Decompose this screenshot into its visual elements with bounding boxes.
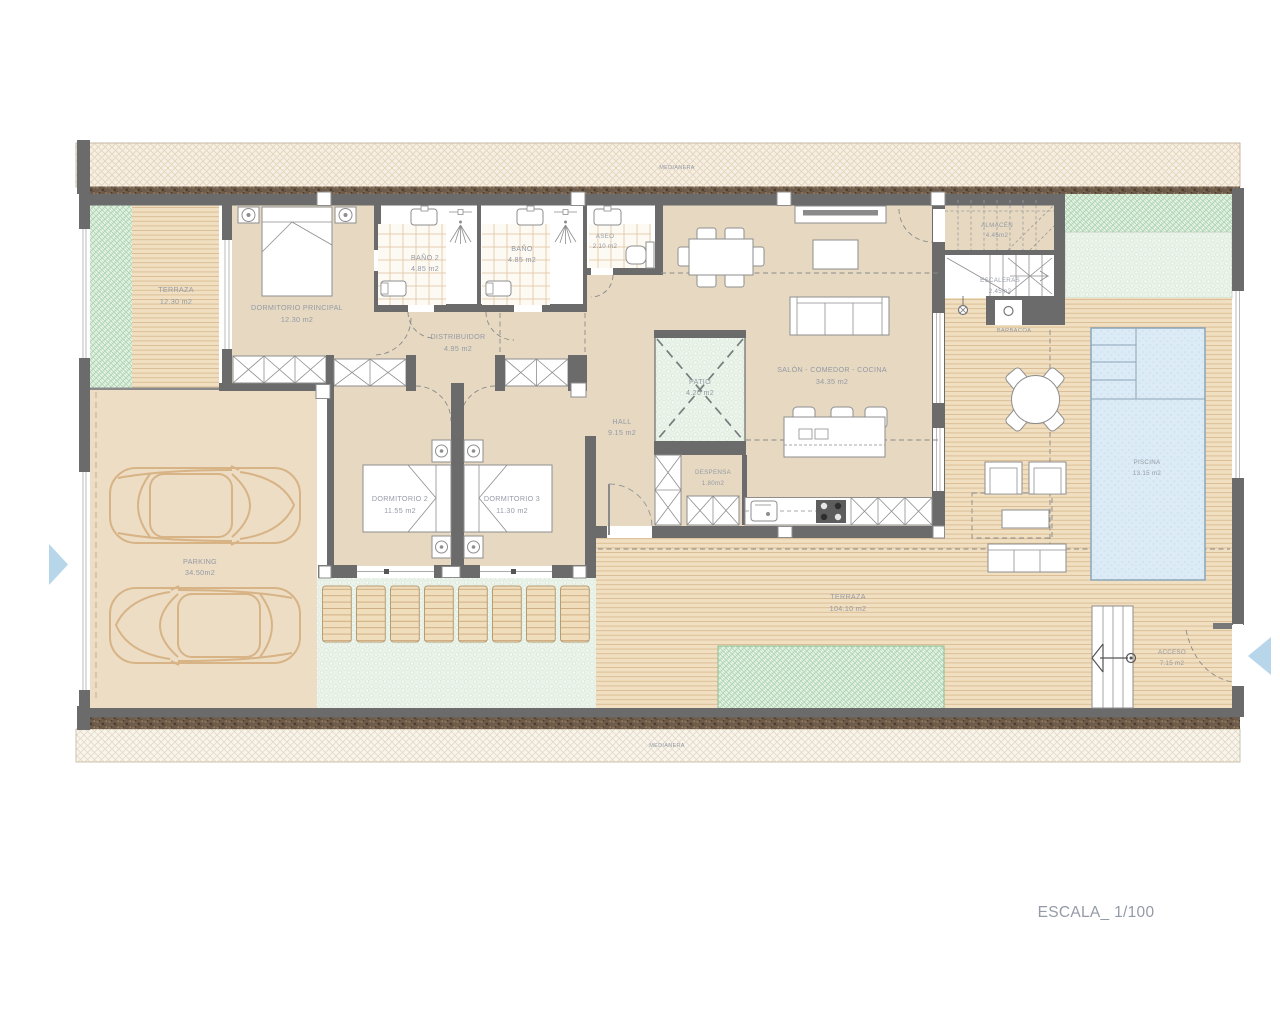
svg-text:1.80m2: 1.80m2 <box>702 480 725 487</box>
svg-text:PARKING: PARKING <box>183 557 217 566</box>
svg-text:ESCALA_ 1/100: ESCALA_ 1/100 <box>1038 904 1155 921</box>
svg-text:PISCINA: PISCINA <box>1134 459 1161 466</box>
svg-text:4.85 m2: 4.85 m2 <box>411 264 439 273</box>
svg-text:BAÑO: BAÑO <box>511 244 533 253</box>
svg-text:ESCALERAS: ESCALERAS <box>980 277 1020 284</box>
svg-text:34.35 m2: 34.35 m2 <box>816 377 848 386</box>
svg-text:DORMITORIO 3: DORMITORIO 3 <box>484 494 540 503</box>
svg-text:ALMACÉN: ALMACÉN <box>981 222 1013 229</box>
svg-text:4.45m2: 4.45m2 <box>986 232 1009 239</box>
svg-text:2.45m2: 2.45m2 <box>989 288 1012 295</box>
svg-text:11.30 m2: 11.30 m2 <box>496 506 528 515</box>
svg-text:4.20 m2: 4.20 m2 <box>686 388 714 397</box>
svg-text:4.95 m2: 4.95 m2 <box>444 344 472 353</box>
svg-text:HALL: HALL <box>612 417 631 426</box>
svg-text:11.55 m2: 11.55 m2 <box>384 506 416 515</box>
svg-text:104.10 m2: 104.10 m2 <box>830 604 867 613</box>
svg-text:SALÓN - COMEDOR - COCINA: SALÓN - COMEDOR - COCINA <box>777 365 887 374</box>
svg-text:9.15 m2: 9.15 m2 <box>608 428 636 437</box>
svg-text:TERRAZA: TERRAZA <box>158 285 194 294</box>
svg-text:PATIO: PATIO <box>689 377 711 386</box>
svg-text:TERRAZA: TERRAZA <box>830 592 866 601</box>
svg-text:7.15 m2: 7.15 m2 <box>1160 660 1185 667</box>
svg-text:ASEO: ASEO <box>596 233 614 240</box>
svg-text:13.15 m2: 13.15 m2 <box>1133 470 1161 477</box>
svg-text:34.50m2: 34.50m2 <box>185 568 215 577</box>
svg-text:ACCESO: ACCESO <box>1158 649 1186 656</box>
svg-text:BAÑO 2: BAÑO 2 <box>411 253 439 262</box>
svg-text:MEDIANERA: MEDIANERA <box>659 165 694 171</box>
svg-text:DORMITORIO PRINCIPAL: DORMITORIO PRINCIPAL <box>251 303 343 312</box>
svg-text:12.30 m2: 12.30 m2 <box>281 315 313 324</box>
svg-text:DORMITORIO 2: DORMITORIO 2 <box>372 494 428 503</box>
svg-text:12.30 m2: 12.30 m2 <box>160 297 192 306</box>
svg-text:BARBACOA: BARBACOA <box>997 328 1032 334</box>
svg-text:DISTRIBUIDOR: DISTRIBUIDOR <box>430 332 485 341</box>
svg-text:4.85 m2: 4.85 m2 <box>508 255 536 264</box>
svg-text:2.10 m2: 2.10 m2 <box>593 243 618 250</box>
svg-text:DESPENSA: DESPENSA <box>695 469 732 476</box>
svg-text:MEDIANERA: MEDIANERA <box>649 743 684 749</box>
